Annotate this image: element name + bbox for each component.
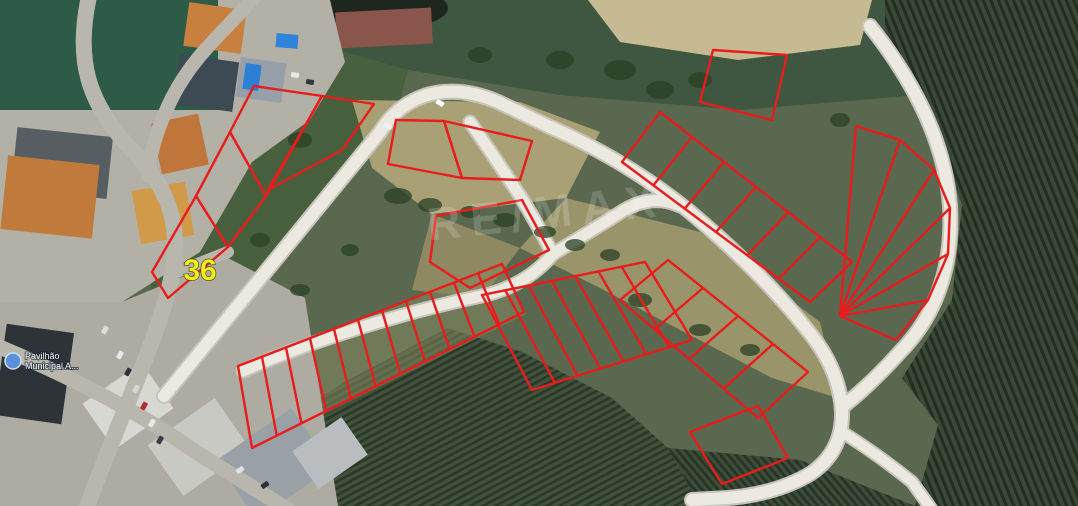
building [0, 155, 99, 238]
tree [689, 324, 711, 336]
tree [830, 113, 850, 127]
tree [688, 72, 712, 88]
tree [250, 233, 270, 247]
tree [604, 60, 636, 80]
tree [468, 47, 492, 63]
satellite-map: RE/MAX 36 Pavilhão Municipal A... [0, 0, 1078, 506]
plot-number-label: 36 [183, 254, 216, 287]
place-label-line1: Pavilhão [25, 351, 60, 361]
tree [384, 188, 412, 204]
listing-photo-frame: RE/MAX 36 Pavilhão Municipal A... [0, 0, 1078, 506]
building [235, 57, 286, 103]
tree [646, 81, 674, 99]
tree [290, 284, 310, 296]
tree [341, 244, 359, 256]
tree [565, 239, 585, 251]
map-render-root [0, 0, 1078, 506]
tree [600, 249, 620, 261]
tree [546, 51, 574, 69]
tree [740, 344, 760, 356]
place-pin-icon [5, 353, 21, 369]
place-label-line2: Municipal A... [25, 361, 79, 371]
roof-top-center [335, 8, 433, 49]
building [275, 33, 298, 49]
